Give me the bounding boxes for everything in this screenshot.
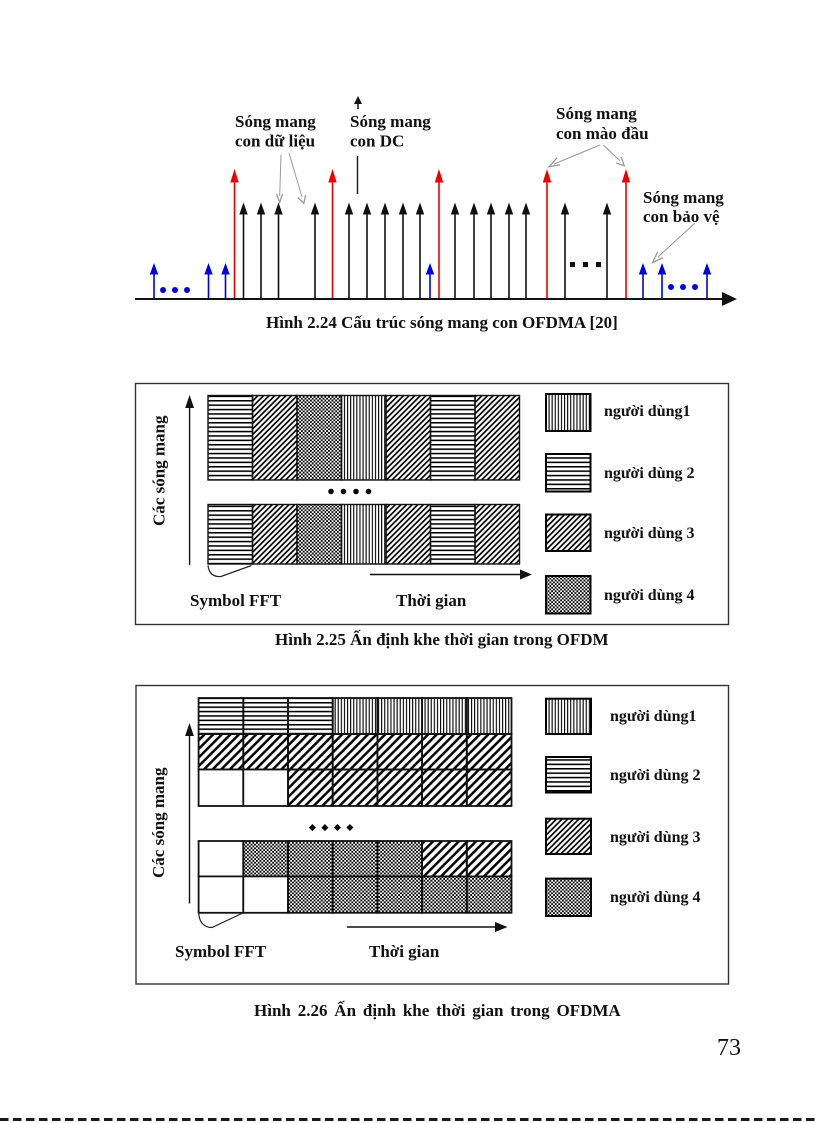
svg-text:con bảo vệ: con bảo vệ <box>643 207 720 226</box>
svg-text:người dùng 3: người dùng 3 <box>610 829 701 846</box>
svg-text:Sóng mang: Sóng mang <box>556 104 637 123</box>
svg-text:người dùng 4: người dùng 4 <box>604 587 695 604</box>
svg-text:người dùng 3: người dùng 3 <box>604 525 695 542</box>
svg-text:Thời gian: Thời gian <box>369 942 440 961</box>
svg-text:người dùng 2: người dùng 2 <box>604 465 695 482</box>
svg-text:Symbol FFT: Symbol FFT <box>175 942 267 961</box>
svg-text:Các sóng mang: Các sóng mang <box>149 767 168 878</box>
svg-text:Sóng mang: Sóng mang <box>235 112 316 131</box>
svg-text:Thời gian: Thời gian <box>396 591 467 610</box>
svg-text:con dữ liệu: con dữ liệu <box>235 132 315 151</box>
svg-text:Các sóng mang: Các sóng mang <box>150 415 169 526</box>
svg-text:người dùng 4: người dùng 4 <box>610 889 701 906</box>
svg-text:Sóng mang: Sóng mang <box>643 188 724 207</box>
svg-text:Sóng mang: Sóng mang <box>350 112 431 131</box>
svg-text:người dùng1: người dùng1 <box>604 403 691 420</box>
svg-text:người dùng1: người dùng1 <box>610 708 697 725</box>
svg-text:con DC: con DC <box>350 132 404 151</box>
svg-text:Symbol FFT: Symbol FFT <box>190 591 282 610</box>
svg-text:con mào đầu: con mào đầu <box>556 124 649 143</box>
svg-text:người dùng 2: người dùng 2 <box>610 767 701 784</box>
